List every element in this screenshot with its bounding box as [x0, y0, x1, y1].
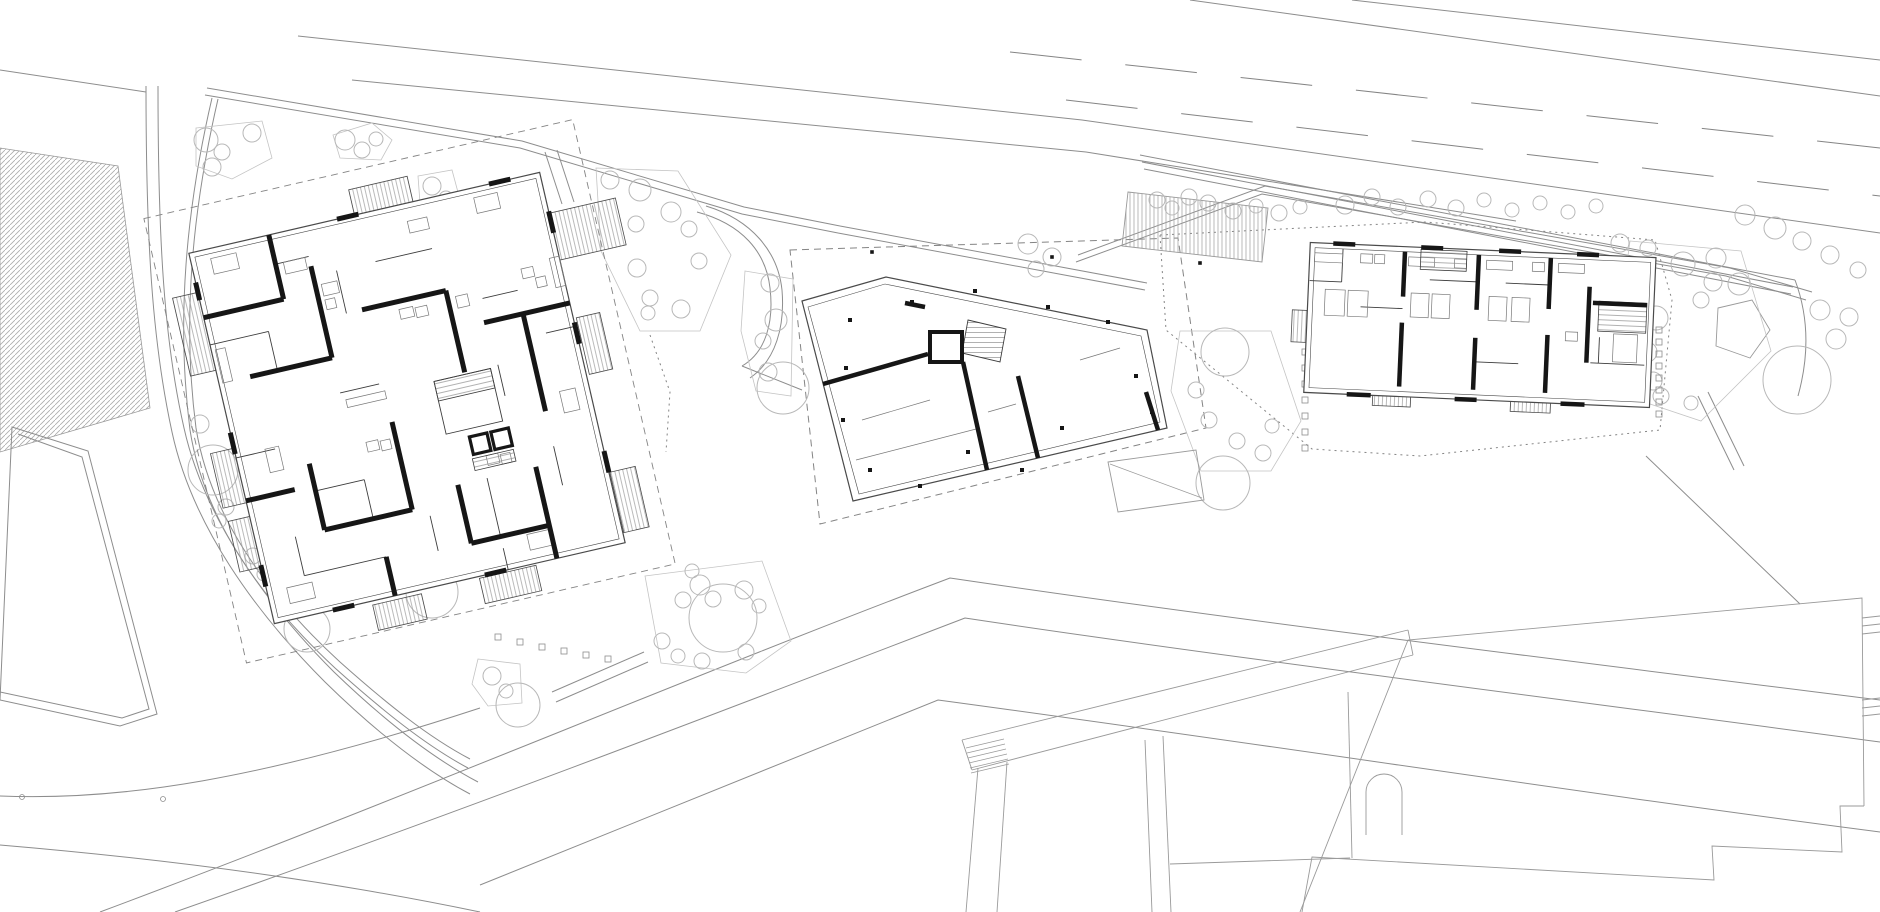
- building-c-apartment-row: [1288, 242, 1656, 418]
- site-plan-drawing: [0, 0, 1880, 912]
- site-plan-page: [0, 0, 1880, 912]
